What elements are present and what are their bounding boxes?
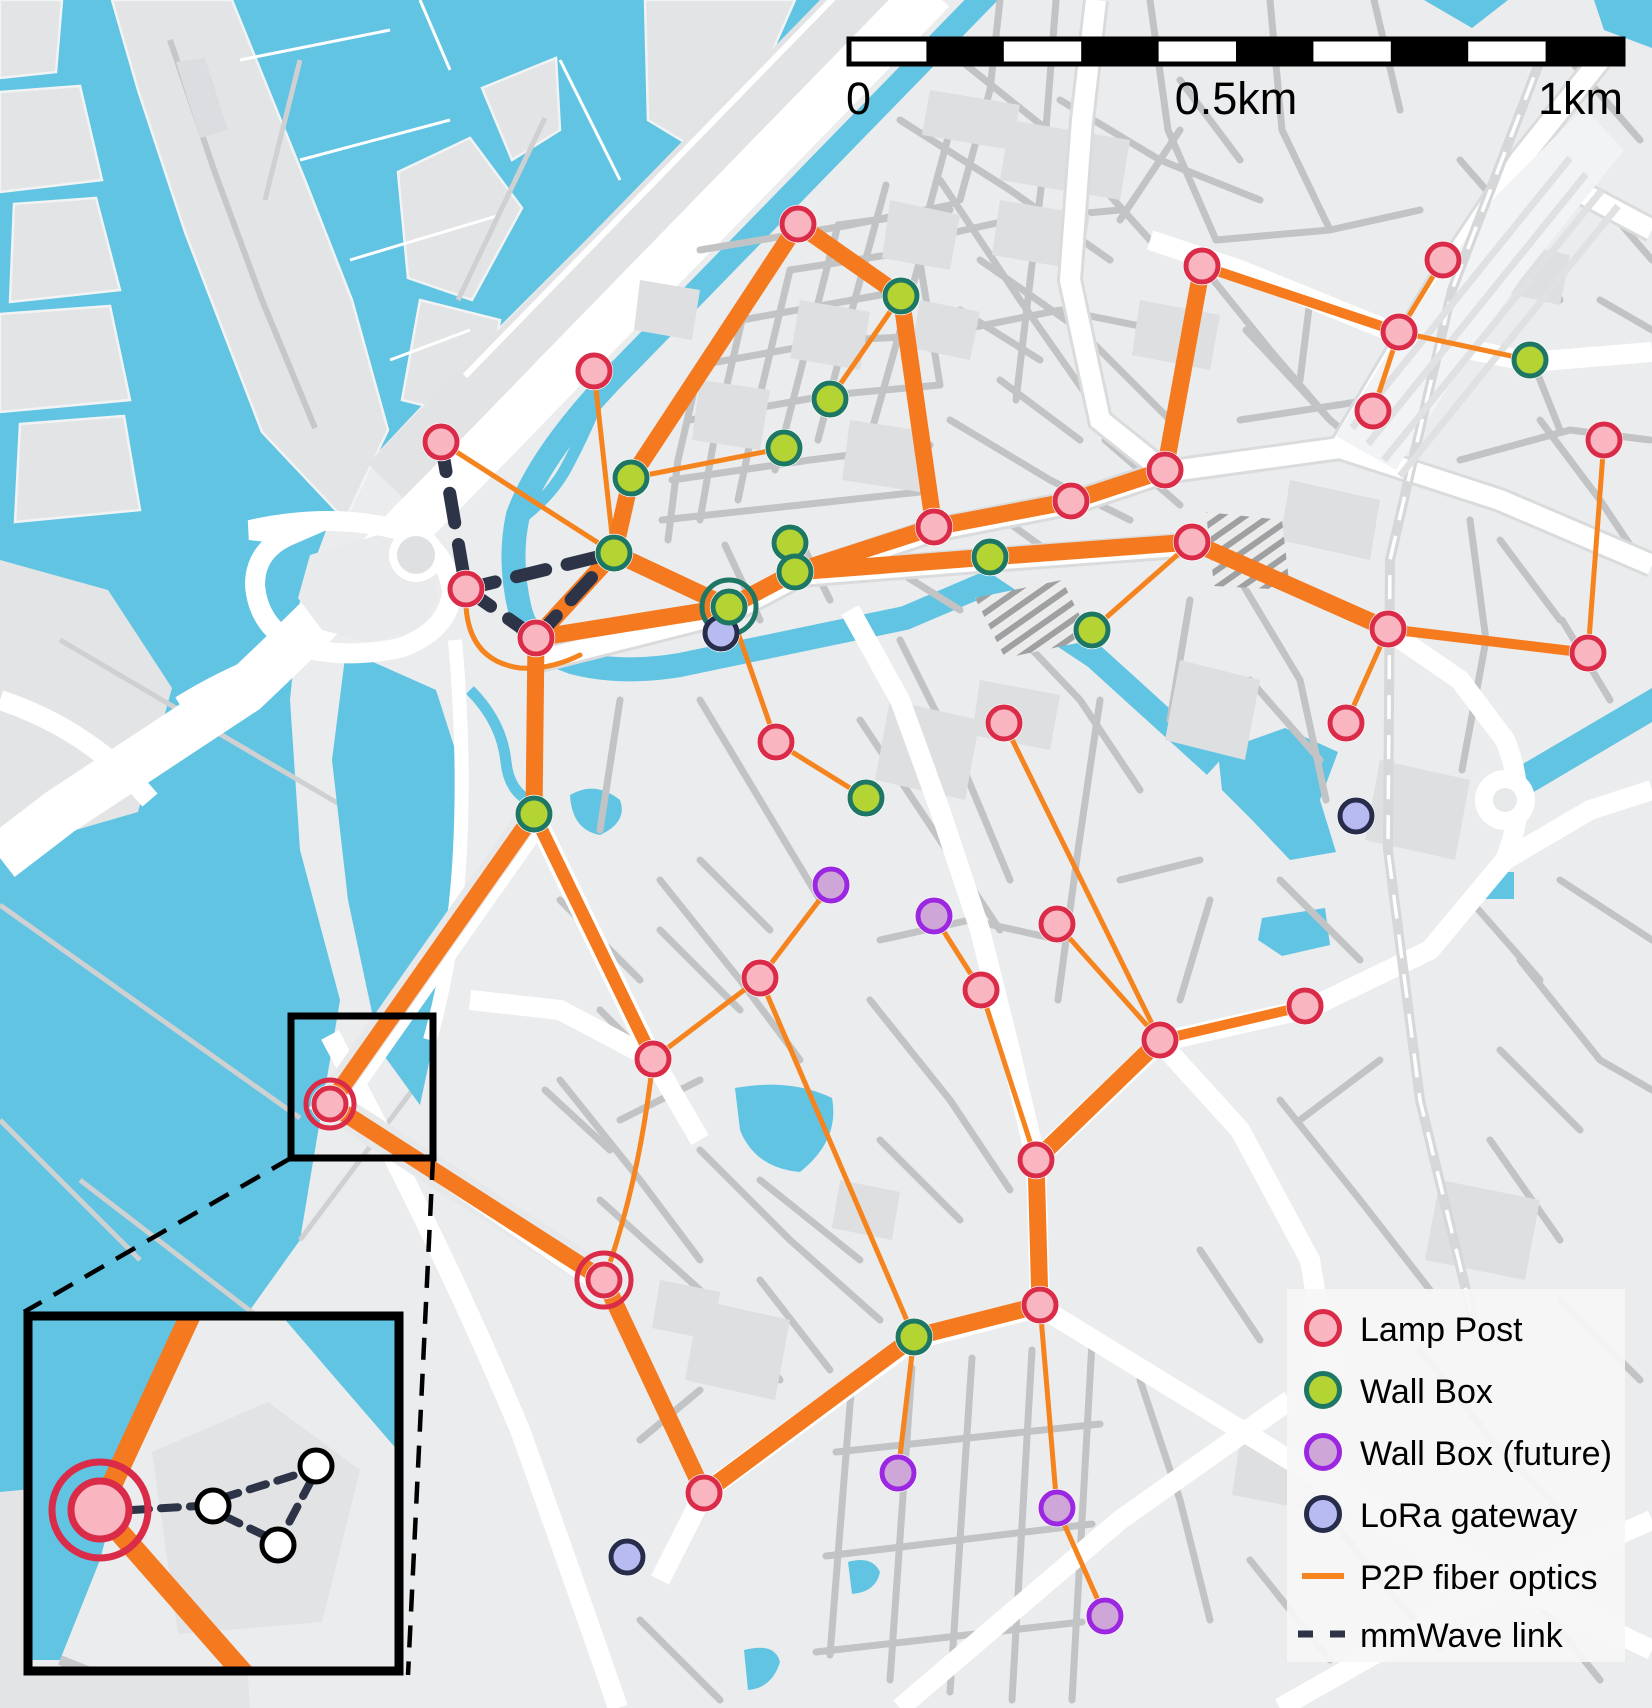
svg-text:0: 0 (846, 73, 871, 124)
svg-text:Wall Box: Wall Box (1360, 1373, 1493, 1411)
svg-text:0.5km: 0.5km (1175, 73, 1298, 124)
svg-text:mmWave link: mmWave link (1360, 1617, 1564, 1655)
svg-text:P2P fiber optics: P2P fiber optics (1360, 1559, 1598, 1597)
svg-text:Lamp Post: Lamp Post (1360, 1311, 1523, 1349)
svg-text:LoRa gateway: LoRa gateway (1360, 1497, 1577, 1535)
svg-text:Wall Box (future): Wall Box (future) (1360, 1435, 1612, 1473)
svg-text:1km: 1km (1538, 73, 1623, 124)
